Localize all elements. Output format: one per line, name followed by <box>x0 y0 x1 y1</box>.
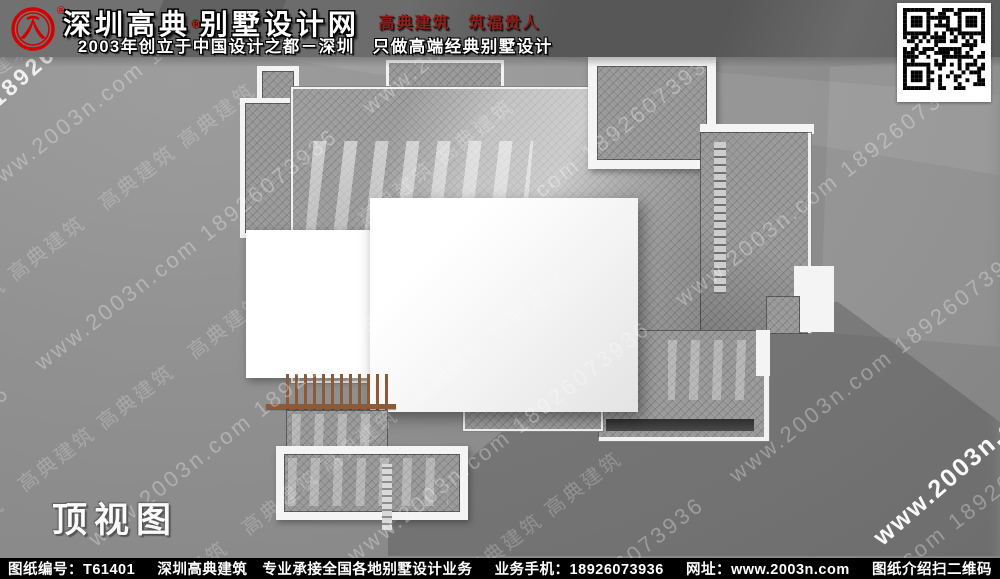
roof-bottomleft <box>276 446 468 520</box>
parapet-bottomright <box>756 330 770 376</box>
qr-code-pattern <box>903 8 985 90</box>
brand-slogan: 高典建筑 筑福贵人 <box>378 9 540 33</box>
view-title-label: 顶视图 <box>52 492 178 543</box>
roof-topright-square <box>588 57 716 169</box>
qr-code <box>897 3 991 102</box>
website-url: 网址：www.2003n.com <box>686 558 850 579</box>
footer-info-bar: 图纸编号：T61401 深圳高典建筑 专业承接全国各地别墅设计业务 业务手机：1… <box>0 558 1000 579</box>
brand-subtitle: 2003年创立于中国设计之都－深圳 只做高端经典别墅设计 <box>78 33 553 57</box>
promo-render-canvas: www.2003n.com 18926073936 www.2003n.com … <box>0 0 1000 579</box>
roof-walkway-strip <box>714 142 726 294</box>
roof-step-far-right <box>766 296 800 334</box>
business-phone: 业务手机：18926073936 <box>495 558 664 579</box>
pergola-beam <box>266 404 396 409</box>
window-band-bottomright <box>606 419 754 431</box>
stone-pier <box>382 464 392 532</box>
title-registered-mark: ® <box>191 17 200 31</box>
company-logo-icon: ® <box>10 5 60 53</box>
drawing-number: 图纸编号：T61401 <box>8 558 135 579</box>
flat-roof-main <box>370 198 638 412</box>
site-header: ® 深圳高典®别墅设计网 高典建筑 筑福贵人 2003年创立于中国设计之都－深圳… <box>0 0 1000 57</box>
qr-hint: 图纸介绍扫二维码 <box>872 558 992 579</box>
company-services: 深圳高典建筑 专业承接全国各地别墅设计业务 <box>157 558 472 579</box>
roof-block-far-right <box>794 266 834 332</box>
